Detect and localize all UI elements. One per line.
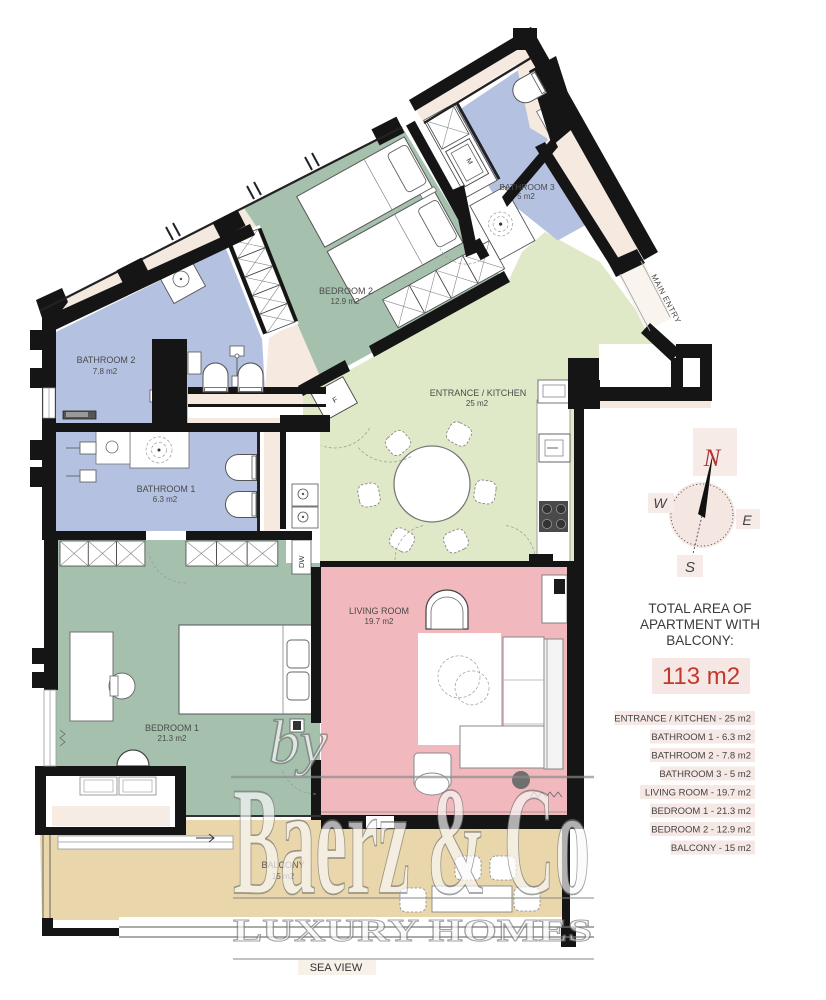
svg-text:BATHROOM 1: BATHROOM 1 bbox=[137, 484, 196, 494]
svg-text:19.7 m2: 19.7 m2 bbox=[365, 617, 394, 626]
svg-text:BALCONY - 15 m2: BALCONY - 15 m2 bbox=[671, 843, 751, 854]
svg-text:BEDROOM 2 - 12.9 m2: BEDROOM 2 - 12.9 m2 bbox=[651, 825, 751, 836]
svg-text:Baerz & Co: Baerz & Co bbox=[233, 755, 590, 927]
svg-text:S: S bbox=[685, 559, 695, 576]
svg-text:W: W bbox=[653, 495, 668, 511]
svg-text:5 m2: 5 m2 bbox=[517, 192, 535, 201]
svg-text:7.8 m2: 7.8 m2 bbox=[93, 367, 118, 376]
svg-text:E: E bbox=[742, 512, 752, 528]
svg-text:SEA VIEW: SEA VIEW bbox=[310, 962, 363, 974]
svg-text:BEDROOM 1 - 21.3 m2: BEDROOM 1 - 21.3 m2 bbox=[651, 806, 751, 817]
svg-text:BEDROOM 1: BEDROOM 1 bbox=[145, 723, 199, 733]
svg-text:TOTAL AREA OF: TOTAL AREA OF bbox=[648, 601, 751, 616]
svg-text:BATHROOM 2: BATHROOM 2 bbox=[77, 355, 136, 365]
svg-text:BALCONY:: BALCONY: bbox=[666, 633, 734, 648]
svg-text:BEDROOM 2: BEDROOM 2 bbox=[319, 286, 373, 296]
svg-text:LUXURY HOMES: LUXURY HOMES bbox=[233, 912, 592, 948]
svg-text:25 m2: 25 m2 bbox=[466, 399, 489, 408]
svg-text:21.3 m2: 21.3 m2 bbox=[158, 734, 187, 743]
svg-text:6.3 m2: 6.3 m2 bbox=[153, 495, 178, 504]
svg-text:BATHROOM 3: BATHROOM 3 bbox=[499, 182, 555, 192]
svg-text:ENTRANCE / KITCHEN - 25 m2: ENTRANCE / KITCHEN - 25 m2 bbox=[614, 714, 751, 725]
svg-text:12.9 m2: 12.9 m2 bbox=[331, 297, 360, 306]
svg-text:113 m2: 113 m2 bbox=[662, 663, 740, 690]
svg-text:BATHROOM 3 - 5 m2: BATHROOM 3 - 5 m2 bbox=[659, 769, 751, 780]
svg-text:APARTMENT WITH: APARTMENT WITH bbox=[640, 617, 760, 632]
svg-text:BATHROOM 1 - 6.3 m2: BATHROOM 1 - 6.3 m2 bbox=[651, 732, 751, 743]
svg-text:LIVING ROOM: LIVING ROOM bbox=[349, 606, 409, 616]
svg-text:N: N bbox=[703, 445, 722, 472]
svg-text:DW: DW bbox=[297, 555, 306, 568]
svg-text:LIVING ROOM - 19.7 m2: LIVING ROOM - 19.7 m2 bbox=[645, 788, 751, 799]
svg-text:ENTRANCE / KITCHEN: ENTRANCE / KITCHEN bbox=[430, 388, 527, 398]
svg-text:BATHROOM 2 - 7.8 m2: BATHROOM 2 - 7.8 m2 bbox=[651, 751, 751, 762]
